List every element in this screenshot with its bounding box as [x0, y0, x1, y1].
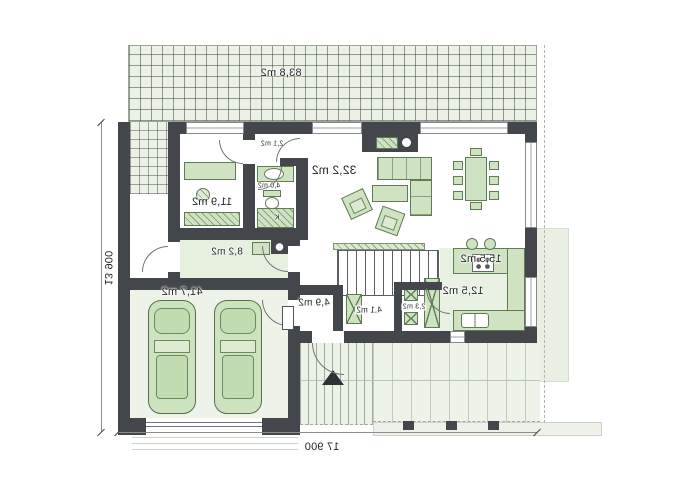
wall-segment: [333, 285, 343, 331]
terrace-paving: [128, 45, 537, 122]
wall-segment: [296, 160, 308, 238]
stair-balustrade: [333, 243, 425, 250]
coffee-table: [372, 185, 408, 202]
armchair-seat: [349, 197, 367, 214]
pantry-shelf: [404, 312, 418, 325]
floor-plan: 83,8 m2 11,9 m2 2,1 m2 4,0 m2 32,2 m2 15…: [0, 0, 700, 495]
wall-segment: [243, 164, 255, 238]
label-terrace-area: 83,8 m2: [260, 67, 301, 79]
label-dining-area: 15,5 m2: [460, 253, 501, 265]
overhang-line: [544, 45, 545, 423]
wall-segment: [362, 122, 420, 134]
armchair: [375, 206, 406, 237]
dining-chair: [453, 176, 463, 185]
wall-segment: [525, 122, 537, 142]
radiator: [282, 306, 294, 330]
porch-post: [403, 421, 414, 430]
wall-segment: [344, 331, 450, 343]
dining-chair: [453, 191, 463, 200]
car: [148, 300, 196, 414]
porch-post: [488, 421, 499, 430]
dimension-line-bottom: [118, 432, 537, 433]
dining-chair: [489, 161, 499, 170]
label-garage-area: 41,7 m2: [161, 286, 202, 298]
terrace-door-window: [420, 122, 508, 134]
window: [525, 142, 537, 228]
label-corridor-area: 4,1 m2: [355, 306, 383, 315]
label-utility-area: 8,2 m2: [211, 247, 243, 258]
wall-segment: [244, 122, 312, 134]
sofa-horizontal: [377, 157, 432, 180]
dining-chair: [489, 191, 499, 200]
label-overall-width: 17 900: [305, 441, 340, 453]
dining-chair: [470, 202, 482, 210]
toilet-tank: [263, 190, 281, 197]
armchair-seat: [381, 215, 398, 231]
label-kitchen-area: 12,5 m2: [442, 285, 483, 297]
dining-table: [465, 157, 487, 201]
fireplace-flue: [402, 138, 411, 147]
porch: [373, 343, 540, 422]
driveway: [132, 434, 298, 450]
label-overall-depth: 13 900: [102, 251, 114, 286]
wardrobe: [184, 212, 240, 226]
wall-segment: [288, 285, 335, 295]
armchair: [341, 188, 373, 220]
car: [214, 300, 262, 414]
garage-door: [146, 422, 262, 427]
porch-post: [446, 421, 457, 430]
wall-segment: [130, 278, 288, 290]
window: [312, 122, 362, 134]
wall-segment: [180, 228, 308, 240]
side-door-arc: [142, 246, 168, 272]
window: [186, 122, 244, 134]
wall-segment: [465, 331, 537, 343]
wall-segment: [243, 134, 255, 140]
label-living-area: 32,2 m2: [312, 163, 357, 177]
wall-segment: [525, 228, 537, 277]
window: [525, 277, 537, 327]
dining-chair: [470, 148, 482, 156]
wall-segment: [288, 240, 300, 246]
bar-stool: [466, 238, 478, 250]
dining-chair: [489, 176, 499, 185]
label-fixture-mark: K: [275, 215, 280, 222]
bedroom-door-arc: [219, 140, 243, 164]
bar-stool: [484, 238, 496, 250]
label-hall-area: 4,9 m2: [298, 298, 330, 309]
label-bathroom-area: 4,0 m2: [258, 183, 281, 190]
wall-segment: [118, 122, 130, 435]
side-patio-paving: [130, 122, 168, 194]
wall-segment: [168, 122, 180, 242]
dining-chair: [453, 161, 463, 170]
label-pantry-area: 2,3 m2: [402, 304, 427, 311]
label-bedroom-area: 11,9 m2: [192, 196, 232, 208]
desk: [184, 162, 236, 180]
sofa-vertical: [410, 180, 432, 216]
kitchen-sink: [461, 313, 489, 328]
window: [450, 331, 465, 343]
label-vestibule-area: 2,1 m2: [261, 141, 284, 148]
fireplace-vent: [376, 137, 398, 149]
